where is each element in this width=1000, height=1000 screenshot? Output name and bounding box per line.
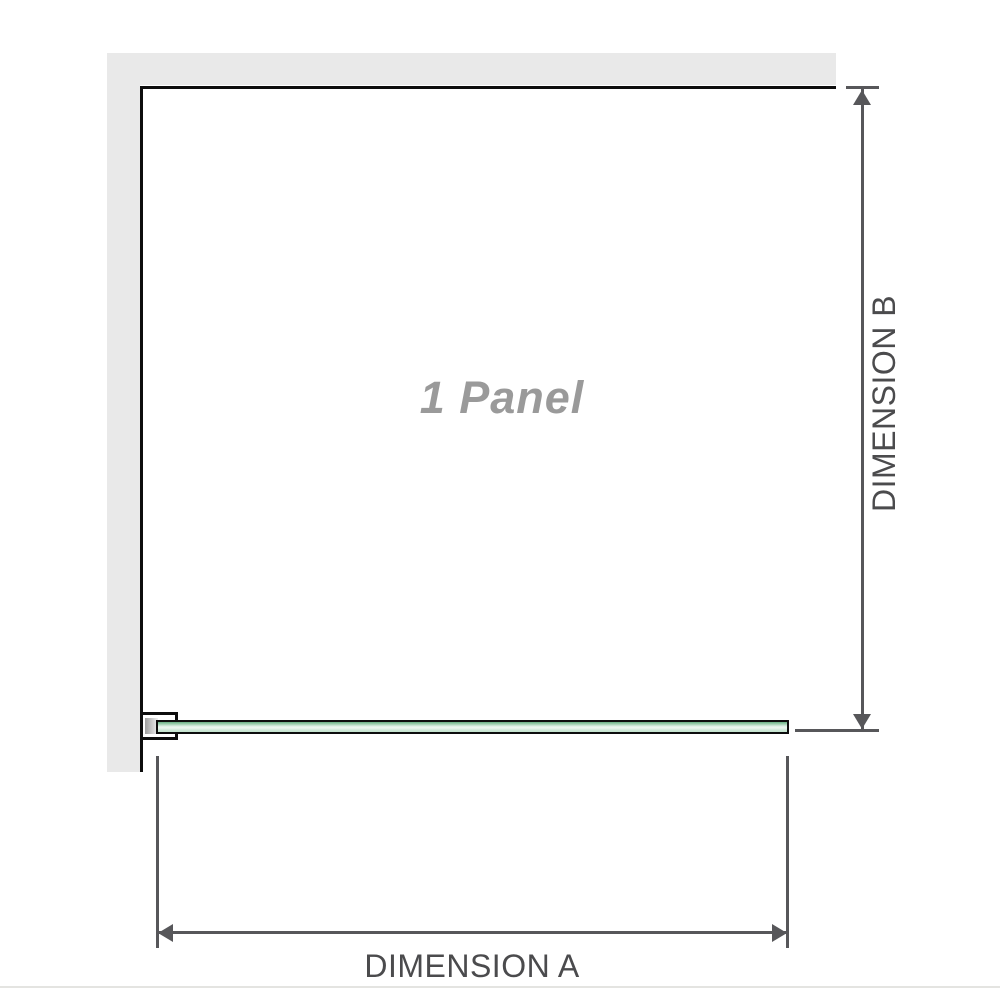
dim-a-arrow-right-icon (772, 924, 787, 942)
dim-b-bottom-tick (795, 729, 879, 732)
dim-b-arrow-up-icon (853, 90, 871, 105)
dimension-b-label: DIMENSION B (868, 312, 900, 512)
shower-panel-diagram: DIMENSION B DIMENSION A 1 Panel (0, 0, 1000, 1000)
dim-b-arrow-down-icon (853, 714, 871, 729)
wall-left-bar (107, 53, 140, 772)
glass-panel-bar (156, 720, 789, 734)
dim-a-left-extension-line (156, 756, 159, 948)
dim-a-right-extension-line (786, 756, 789, 948)
bottom-divider-line (0, 986, 1000, 988)
dim-b-line (861, 89, 864, 730)
dim-a-line (158, 931, 787, 934)
panel-count-label: 1 Panel (377, 368, 627, 428)
wall-top-bar (107, 53, 836, 85)
panel-frame-left-line (140, 86, 143, 772)
panel-frame-top-line (140, 86, 836, 89)
dim-a-arrow-left-icon (158, 924, 173, 942)
dimension-a-label: DIMENSION A (322, 948, 622, 984)
